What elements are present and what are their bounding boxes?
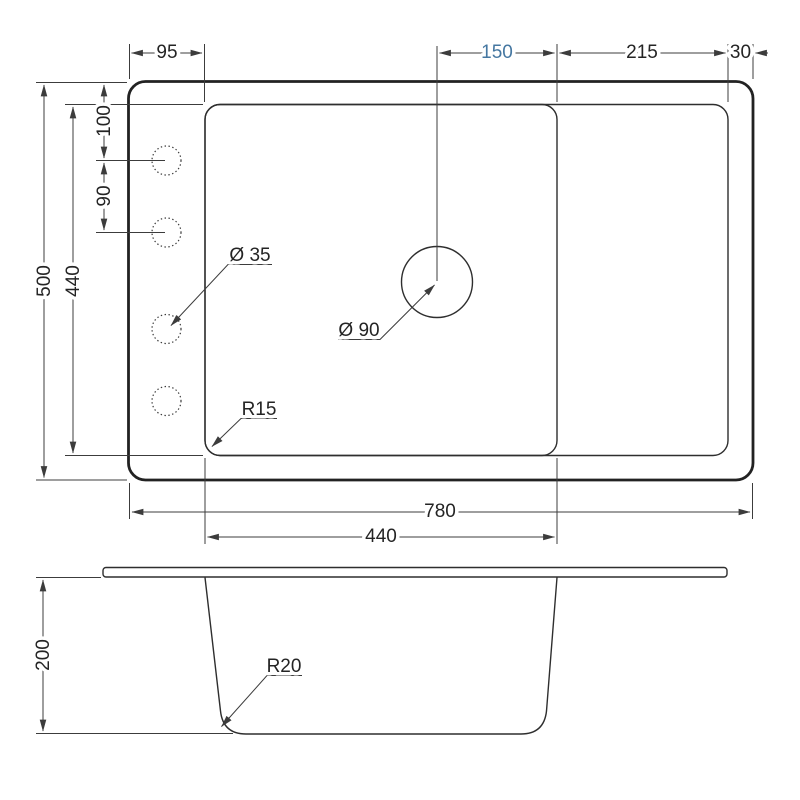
drain-diameter-label: Ø 90 <box>338 320 379 341</box>
dim-500-label: 500 <box>34 265 55 297</box>
dim-440-left-label: 440 <box>63 265 84 297</box>
dim-30-label: 30 <box>730 42 751 63</box>
faucet-holes <box>152 146 181 416</box>
dim-215-label: 215 <box>626 42 658 63</box>
dim-90-label: 90 <box>94 185 115 206</box>
section-extension-lines <box>36 578 233 734</box>
dim-150-label: 150 <box>481 42 513 63</box>
bottom-radius-label: R20 <box>267 656 302 677</box>
outer-rim-outline <box>129 82 754 481</box>
sink-dimension-drawing: 95 150 215 30 500 440 100 90 780 440 <box>0 0 800 800</box>
extension-lines <box>36 44 753 544</box>
leader-callouts: Ø 35 Ø 90 R15 <box>171 245 435 447</box>
bowl-radius-leader <box>212 419 277 447</box>
dim-100-label: 100 <box>94 105 115 137</box>
bottom-radius-leader <box>222 676 303 727</box>
hole-diameter-leader <box>171 265 272 326</box>
inner-contour-outline <box>205 105 728 456</box>
top-dimensions: 95 150 215 30 <box>132 42 769 63</box>
hole-diameter-label: Ø 35 <box>229 245 270 266</box>
bowl-radius-label: R15 <box>242 399 277 420</box>
dim-95-label: 95 <box>156 42 177 63</box>
plan-view: 95 150 215 30 500 440 100 90 780 440 <box>34 42 768 547</box>
left-dimensions: 500 440 100 90 <box>34 85 115 478</box>
dim-200-label: 200 <box>33 639 54 671</box>
technical-drawing-page: 95 150 215 30 500 440 100 90 780 440 <box>0 0 800 800</box>
countertop-slab <box>103 568 727 578</box>
dim-440-bottom-label: 440 <box>365 526 397 547</box>
bowl-section-profile <box>205 578 557 735</box>
dim-780-label: 780 <box>424 501 456 522</box>
bottom-dimensions: 780 440 <box>132 501 750 547</box>
faucet-hole-4 <box>152 387 181 416</box>
section-view: 200 R20 <box>33 568 727 735</box>
